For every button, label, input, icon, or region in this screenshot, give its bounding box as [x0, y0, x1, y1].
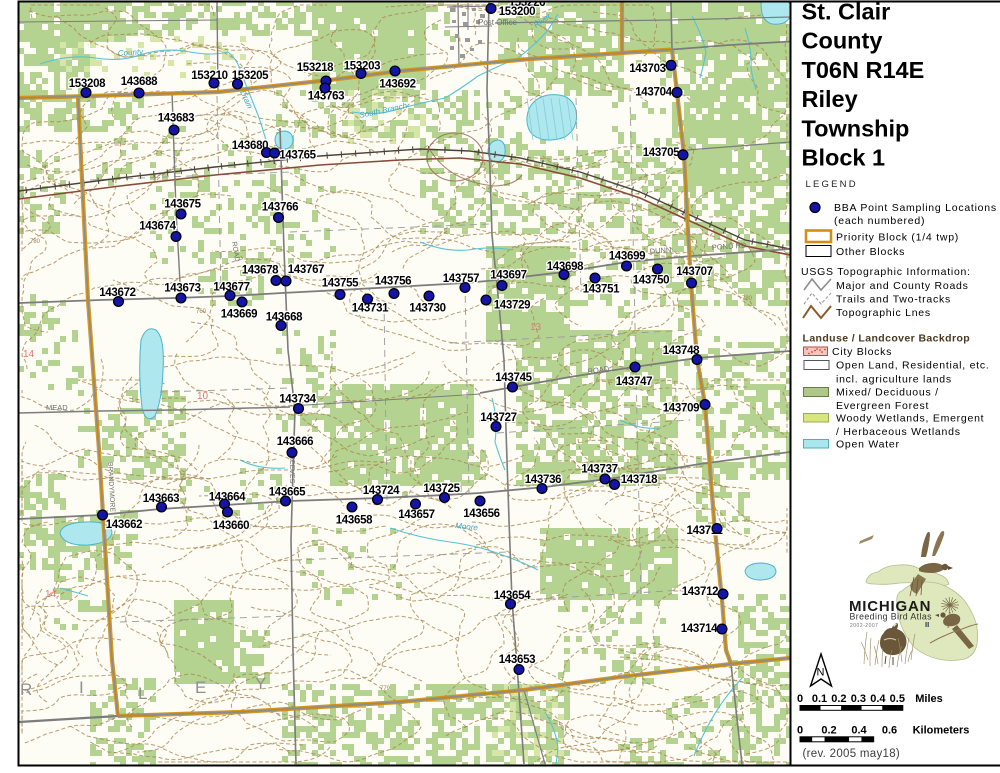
svg-text:143657: 143657 [398, 509, 435, 521]
svg-text:143675: 143675 [164, 199, 201, 211]
svg-text:L: L [138, 684, 147, 703]
svg-text:143767: 143767 [288, 264, 325, 276]
svg-text:760: 760 [196, 309, 207, 315]
svg-text:R: R [20, 680, 32, 699]
svg-text:Kilometers: Kilometers [913, 725, 970, 737]
svg-text:Woody Wetlands, Emergent: Woody Wetlands, Emergent [836, 413, 984, 425]
svg-text:780: 780 [30, 239, 41, 245]
svg-text:143714: 143714 [681, 623, 718, 635]
svg-text:T06N R14E: T06N R14E [802, 57, 925, 83]
svg-text:Major and County Roads: Major and County Roads [836, 280, 969, 292]
svg-text:143751: 143751 [583, 284, 620, 296]
svg-text:0.4: 0.4 [870, 693, 886, 705]
svg-text:0.1: 0.1 [812, 693, 827, 705]
svg-text:County: County [118, 47, 145, 58]
svg-text:St. Clair: St. Clair [802, 0, 891, 25]
svg-text:143683: 143683 [158, 113, 195, 125]
svg-text:0.5: 0.5 [890, 693, 905, 705]
svg-text:0.2: 0.2 [831, 693, 846, 705]
svg-text:II: II [925, 620, 929, 629]
svg-text:Block 1: Block 1 [802, 145, 886, 171]
svg-text:2002-2007: 2002-2007 [850, 623, 878, 629]
svg-text:143718: 143718 [621, 474, 658, 486]
svg-text:0: 0 [797, 725, 803, 737]
svg-text:143688: 143688 [121, 76, 158, 88]
svg-text:Y: Y [255, 674, 266, 693]
svg-text:143707: 143707 [676, 266, 713, 278]
svg-text:143703: 143703 [629, 63, 666, 75]
svg-text:153200: 153200 [499, 6, 536, 18]
svg-text:Mixed/ Deciduous /: Mixed/ Deciduous / [836, 387, 939, 399]
svg-text:Trails and Two-tracks: Trails and Two-tracks [836, 294, 951, 306]
svg-text:143660: 143660 [213, 520, 250, 532]
svg-text:143730: 143730 [409, 303, 446, 315]
svg-text:Priority Block (1/4 twp): Priority Block (1/4 twp) [836, 232, 959, 244]
svg-text:143712: 143712 [682, 586, 719, 598]
svg-text:Township: Township [802, 115, 910, 141]
svg-text:0.4: 0.4 [851, 725, 867, 737]
svg-text:Breeding Bird Atlas: Breeding Bird Atlas [850, 612, 933, 622]
svg-text:10: 10 [197, 391, 209, 402]
svg-text:14: 14 [45, 589, 57, 600]
svg-text:143662: 143662 [106, 519, 143, 531]
svg-text:780: 780 [742, 296, 753, 302]
svg-text:Evergreen Forest: Evergreen Forest [836, 400, 929, 412]
svg-text:153218: 153218 [297, 62, 334, 74]
svg-text:143755: 143755 [322, 278, 359, 290]
svg-text:BBA Point Sampling Locations: BBA Point Sampling Locations [834, 202, 997, 214]
svg-text:0.2: 0.2 [821, 725, 836, 737]
svg-text:143766: 143766 [262, 202, 299, 214]
svg-text:DUNN: DUNN [649, 245, 671, 256]
svg-text:13: 13 [530, 322, 542, 333]
svg-text:Open Water: Open Water [836, 439, 900, 451]
svg-text:(rev. 2005 may18): (rev. 2005 may18) [803, 748, 901, 760]
svg-text:(each numbered): (each numbered) [834, 215, 925, 227]
svg-text:14: 14 [23, 349, 35, 360]
svg-text:MEAD: MEAD [46, 403, 68, 412]
svg-text:Miles: Miles [915, 693, 943, 705]
svg-text:0.3: 0.3 [851, 693, 866, 705]
svg-text:143653: 143653 [499, 654, 536, 666]
svg-text:/ Herbaceous Wetlands: / Herbaceous Wetlands [836, 426, 961, 438]
svg-text:incl. agriculture lands: incl. agriculture lands [836, 374, 952, 386]
svg-text:143765: 143765 [279, 150, 316, 162]
svg-text:143669: 143669 [221, 309, 258, 321]
svg-text:143656: 143656 [463, 508, 500, 520]
svg-text:143666: 143666 [277, 436, 314, 448]
svg-text:LEGEND: LEGEND [806, 179, 858, 190]
svg-text:143747: 143747 [616, 376, 653, 388]
svg-text:143658: 143658 [336, 515, 373, 527]
svg-text:143757: 143757 [443, 273, 480, 285]
svg-text:143704: 143704 [635, 87, 672, 99]
svg-text:143731: 143731 [352, 303, 389, 315]
svg-text:USGS Topographic Information:: USGS Topographic Information: [801, 266, 971, 278]
svg-text:143697: 143697 [490, 270, 527, 282]
svg-text:I: I [79, 678, 84, 697]
svg-text:143750: 143750 [633, 275, 670, 287]
svg-text:143674: 143674 [139, 221, 176, 233]
svg-text:Landuse / Landcover Backdrop: Landuse / Landcover Backdrop [803, 333, 971, 345]
svg-text:143729: 143729 [494, 300, 531, 312]
svg-text:0.6: 0.6 [882, 725, 897, 737]
svg-text:143756: 143756 [375, 276, 412, 288]
svg-text:143709: 143709 [663, 403, 700, 415]
svg-text:Riley: Riley [802, 86, 858, 112]
svg-text:0: 0 [797, 693, 803, 705]
svg-text:143678: 143678 [242, 265, 279, 277]
svg-text:City Blocks: City Blocks [832, 346, 892, 358]
svg-text:Post Office: Post Office [478, 18, 518, 27]
svg-text:143737: 143737 [581, 464, 618, 476]
svg-text:Open Land, Residential, etc.: Open Land, Residential, etc. [836, 360, 990, 372]
svg-text:E: E [195, 678, 206, 697]
svg-text:Topographic Lnes: Topographic Lnes [836, 307, 931, 319]
svg-text:143705: 143705 [643, 147, 680, 159]
svg-text:143724: 143724 [363, 485, 400, 497]
svg-text:County: County [802, 28, 883, 54]
svg-text:779: 779 [380, 686, 391, 692]
svg-text:N: N [817, 667, 825, 679]
svg-text:Other Blocks: Other Blocks [836, 246, 905, 258]
svg-text:143692: 143692 [379, 79, 416, 91]
